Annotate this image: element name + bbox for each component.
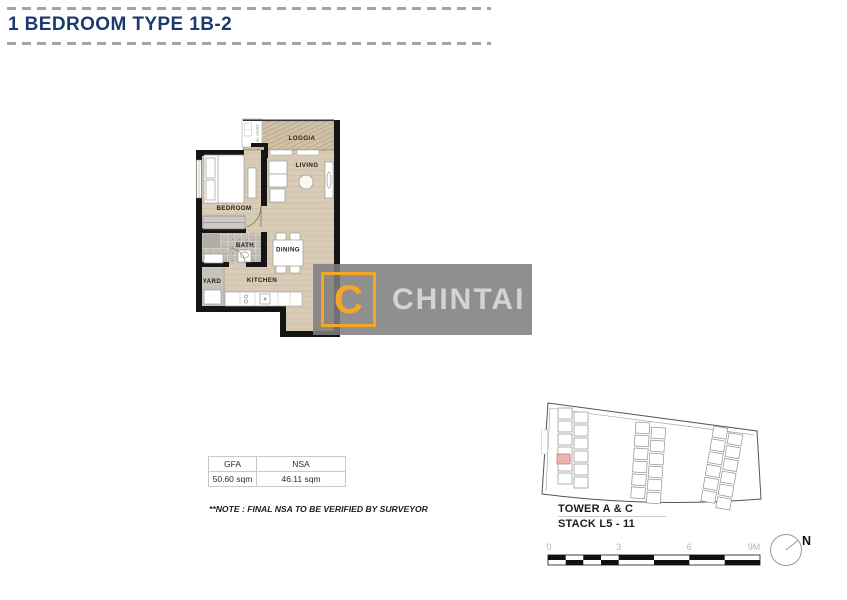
room-label-yard: YARD xyxy=(203,278,222,285)
highlighted-unit xyxy=(557,454,570,464)
washing-machine xyxy=(204,290,221,304)
tower-label: TOWER A & C xyxy=(558,503,666,515)
scale-tick-0: 0 xyxy=(546,542,551,552)
room-label-bedroom: BEDROOM xyxy=(216,205,251,212)
bedroom-window xyxy=(197,160,202,198)
nsa-value: 46.11 sqm xyxy=(257,472,346,487)
tower-underline xyxy=(558,516,666,517)
room-label-bath: BATH xyxy=(236,242,254,249)
dresser xyxy=(248,168,256,198)
scale-tick-3: 3 xyxy=(616,542,621,552)
header-dashed-line-bottom xyxy=(7,42,491,45)
scale-tick-6: 6 xyxy=(687,542,692,552)
logo-brand-text: CHINTAI xyxy=(392,264,525,335)
north-compass-icon: N xyxy=(763,523,833,575)
sofa xyxy=(269,174,287,187)
page-title: 1 BEDROOM TYPE 1B-2 xyxy=(8,14,232,36)
logo-letter: C xyxy=(334,280,363,320)
gfa-header: GFA xyxy=(209,457,257,472)
room-label-kitchen: KITCHEN xyxy=(247,277,277,284)
ac-ledge: AC LEDGE xyxy=(242,119,262,147)
area-table: GFA NSA 50.60 sqm 46.11 sqm xyxy=(208,456,346,487)
room-label-ac-ledge: AC LEDGE xyxy=(256,124,260,142)
bath-sink xyxy=(204,254,223,263)
tower-info: TOWER A & C STACK L5 - 11 xyxy=(558,503,666,530)
key-plan xyxy=(538,392,790,514)
stack-label: STACK L5 - 11 xyxy=(558,518,666,530)
pillow xyxy=(206,180,215,200)
room-label-dining: DINING xyxy=(276,247,300,254)
logo-c-icon: C xyxy=(321,272,376,327)
page: 1 BEDROOM TYPE 1B-2 xyxy=(0,0,847,600)
table-header-row: GFA NSA xyxy=(209,457,346,472)
room-label-living: LIVING xyxy=(295,162,318,169)
surveyor-note: **NOTE : FINAL NSA TO BE VERIFIED BY SUR… xyxy=(209,504,428,514)
coffee-table xyxy=(270,189,285,202)
tv-console xyxy=(325,162,333,198)
north-label: N xyxy=(802,534,811,548)
chintai-watermark: C CHINTAI xyxy=(313,264,532,335)
header-dashed-line-top xyxy=(7,7,491,10)
sofa xyxy=(269,161,287,174)
round-table xyxy=(299,175,313,189)
room-label-loggia: LOGGIA xyxy=(289,135,316,142)
scale-tick-9m: 9M xyxy=(748,542,761,552)
table-value-row: 50.60 sqm 46.11 sqm xyxy=(209,472,346,487)
shower-area xyxy=(203,234,220,248)
nsa-header: NSA xyxy=(257,457,346,472)
scale-bar: 0 3 6 9M xyxy=(545,539,770,571)
gfa-value: 50.60 sqm xyxy=(209,472,257,487)
pillow xyxy=(206,158,215,178)
